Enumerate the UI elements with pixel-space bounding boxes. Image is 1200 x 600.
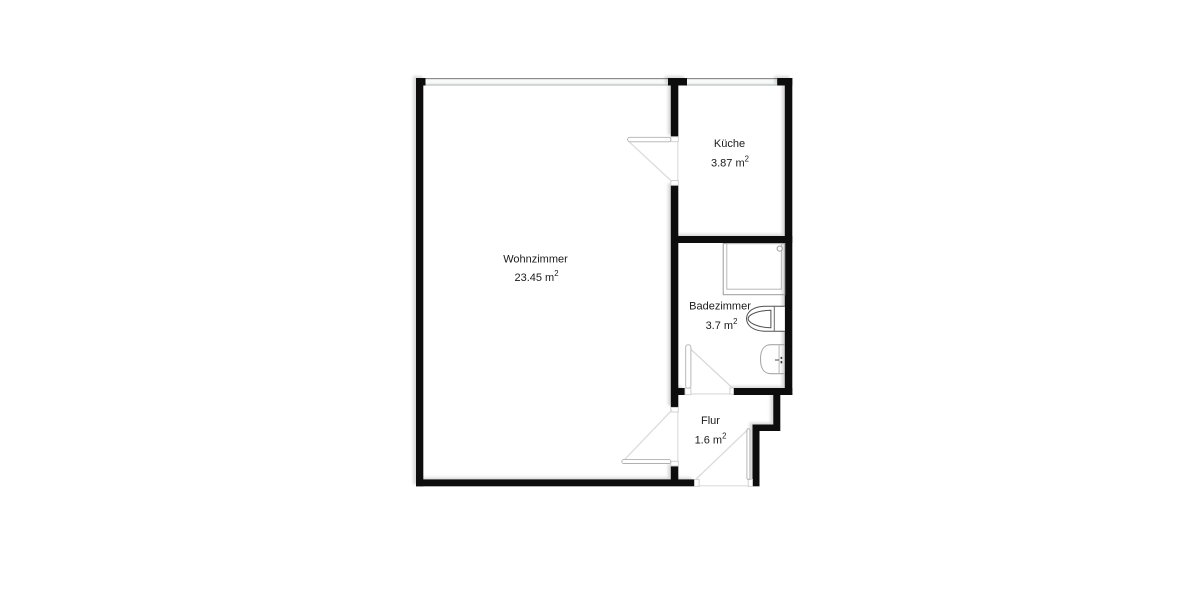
- svg-text:Badezimmer: Badezimmer: [689, 301, 751, 313]
- svg-text:Küche: Küche: [714, 138, 745, 150]
- svg-text:3.7 m2: 3.7 m2: [706, 317, 738, 332]
- svg-text:23.45 m2: 23.45 m2: [514, 269, 558, 284]
- svg-text:1.6 m2: 1.6 m2: [695, 432, 727, 447]
- svg-text:Wohnzimmer: Wohnzimmer: [503, 254, 568, 266]
- svg-text:Flur: Flur: [701, 415, 720, 427]
- svg-text:3.87 m2: 3.87 m2: [711, 155, 749, 170]
